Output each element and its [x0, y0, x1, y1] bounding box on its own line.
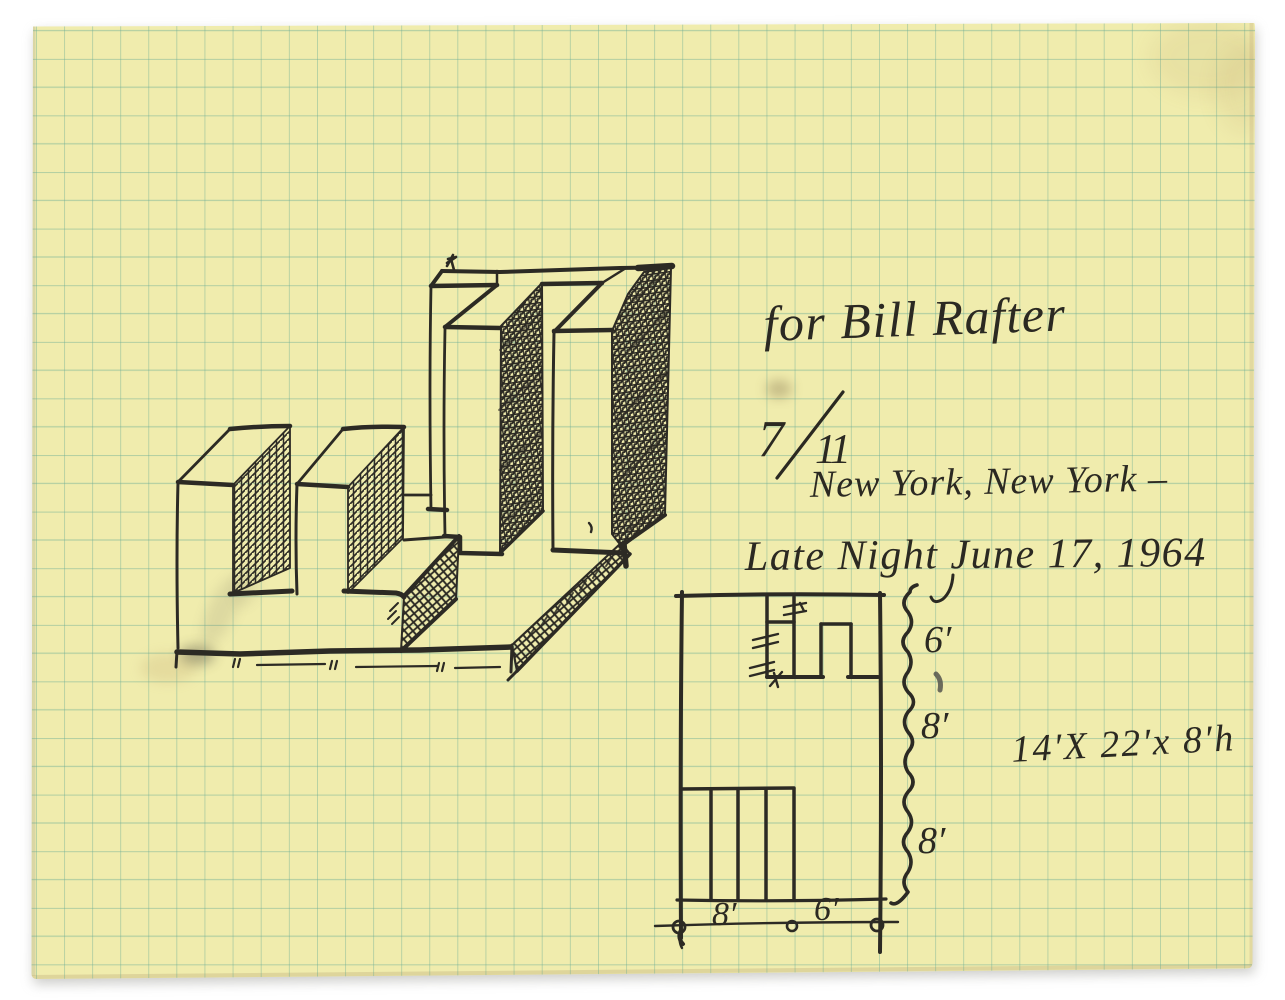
svg-text:8′: 8′ — [918, 820, 946, 862]
svg-text:6′: 6′ — [924, 619, 952, 661]
svg-text:7: 7 — [758, 411, 786, 468]
svg-text:for Bill Rafter: for Bill Rafter — [762, 285, 1067, 352]
svg-text:8′: 8′ — [712, 896, 737, 933]
svg-text:Late Night June 17, 1964: Late Night June 17, 1964 — [744, 530, 1207, 580]
svg-text:8′: 8′ — [921, 705, 949, 747]
svg-text:6′: 6′ — [814, 891, 839, 928]
svg-text:New York, New York –: New York, New York – — [808, 458, 1168, 506]
